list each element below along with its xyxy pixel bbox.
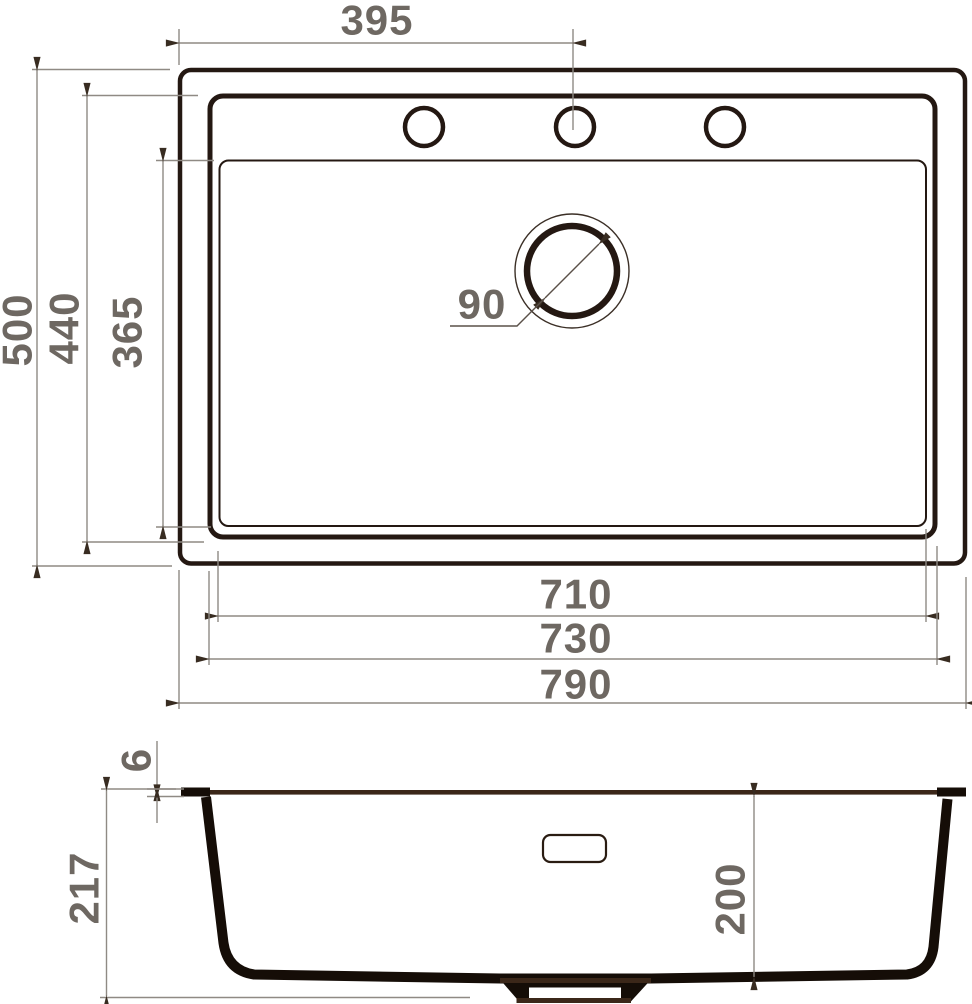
rim-edge-left xyxy=(181,788,210,797)
dimension-200: 200 xyxy=(707,796,755,977)
dim-label-bowl-width: 730 xyxy=(539,615,612,662)
dim-label-overall-depth: 500 xyxy=(0,293,41,366)
rim-edge-right xyxy=(937,788,966,797)
dim-label-bowl-bottom-width: 710 xyxy=(539,571,612,618)
dimension-217: 217 xyxy=(61,789,471,998)
faucet-hole-right xyxy=(706,108,744,146)
dim-label-drain-diameter: 90 xyxy=(458,281,507,328)
basin-section-profile xyxy=(206,797,948,979)
dimension-365: 365 xyxy=(104,161,215,528)
bowl-bottom-outline xyxy=(220,161,927,527)
dim-label-rim-depth: 440 xyxy=(41,291,88,364)
dim-label-bowl-inner-depth: 200 xyxy=(707,862,754,935)
drain-diameter-arrow xyxy=(545,244,599,298)
dim-label-overall-height: 217 xyxy=(61,851,108,924)
sink-side-view: 6 217 200 xyxy=(61,741,967,1003)
rim-surface-line xyxy=(209,790,938,795)
overflow-opening xyxy=(543,835,606,862)
drain-flange-slot xyxy=(529,988,621,999)
dimension-6: 6 xyxy=(113,741,185,823)
dim-label-overall-width: 790 xyxy=(539,661,612,708)
drain-fitting xyxy=(500,978,651,1003)
dim-label-rim-thickness: 6 xyxy=(113,748,160,772)
faucet-hole-center xyxy=(556,108,594,146)
dim-label-bowl-depth: 365 xyxy=(104,295,151,368)
faucet-hole-left xyxy=(405,108,443,146)
sink-dimension-drawing: 90 395 500 440 365 xyxy=(0,0,972,1004)
drawing-canvas: 90 395 500 440 365 xyxy=(0,0,972,1004)
dim-label-faucet-offset: 395 xyxy=(340,0,413,44)
dimension-395: 395 xyxy=(179,0,573,130)
sink-top-view: 90 395 500 440 365 xyxy=(0,0,966,709)
drain-flange-top xyxy=(500,978,651,983)
drain-flange-bottom xyxy=(517,998,632,1003)
dimension-710: 710 xyxy=(218,529,926,622)
